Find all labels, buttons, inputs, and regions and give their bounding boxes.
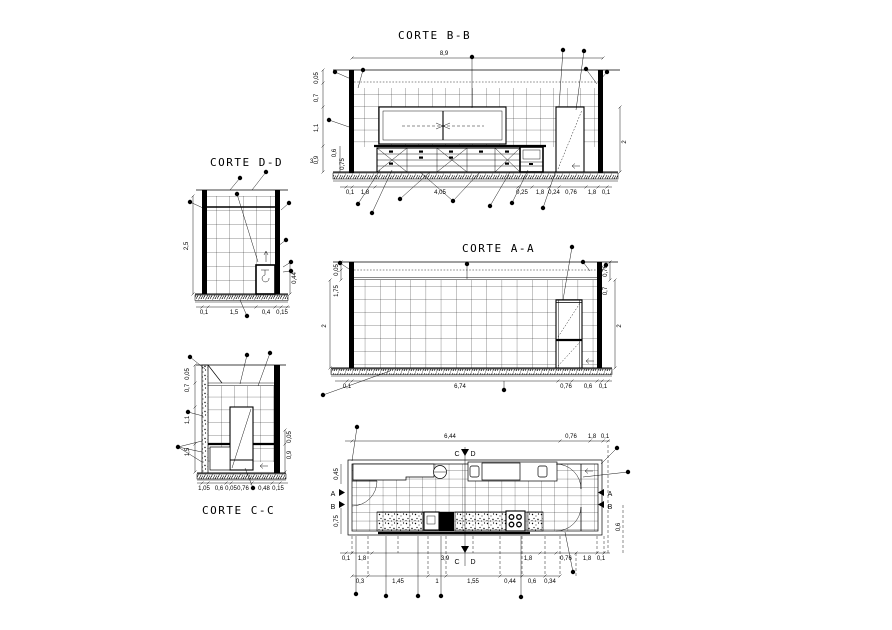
dim-label: 6,74: [454, 384, 466, 390]
section-corte-aa: CORTE A-A 0,1 6,74 0,76 0,6 0,1: [321, 242, 623, 397]
dim-label: 0,76: [565, 434, 577, 440]
plan-view: 6,44 0,76 1,8 0,1 C D C D: [331, 425, 631, 599]
marker-a-label: A: [331, 491, 336, 498]
wall-left: [202, 190, 207, 294]
dim-label: 0,1: [599, 384, 608, 390]
counter-granite: [377, 512, 423, 531]
dim-col-right: 0,76 0,7 2: [603, 261, 623, 370]
dim-col-right: 2: [619, 106, 629, 174]
dim-label: 0,76: [237, 486, 249, 492]
dim-row-2: 0,3 1,45 1 1,55 0,44 0,6 0,34: [351, 575, 562, 586]
floor-hatch: [197, 473, 286, 480]
wall-left: [349, 70, 354, 173]
tall-cabinet: [556, 107, 584, 172]
dim-label: 0,24: [548, 190, 560, 196]
dim-label: 0,6: [584, 384, 593, 390]
dim-label: 1,05: [198, 486, 210, 492]
section-corte-dd: CORTE D-D 3 0,1 1,5 0,4 0,15 2,: [184, 156, 314, 318]
dim-label: 0,48: [258, 486, 270, 492]
dim-label: 0,05: [334, 264, 340, 276]
dim-label: 1,1: [314, 123, 320, 132]
soffit-line: [354, 278, 597, 280]
dim-label: 0,44: [504, 579, 516, 585]
dim-label: 1,75: [334, 285, 340, 297]
tall-cabinet: [230, 407, 253, 470]
dim-label: 1,8: [588, 190, 597, 196]
dim-row-bottom: 0,1 6,74 0,76 0,6 0,1: [335, 380, 612, 391]
dim-label: 4,05: [434, 190, 446, 196]
dim-label: 0,6: [215, 486, 224, 492]
section-title: CORTE C-C: [202, 504, 275, 517]
section-corte-bb: CORTE B-B 8,9: [314, 29, 628, 215]
dim-label: 0,45: [334, 468, 340, 480]
wall-right: [597, 262, 602, 368]
dim-label: 1,8: [583, 556, 592, 562]
dim-label: 8,9: [440, 51, 449, 57]
dim-label: 0,1: [601, 434, 610, 440]
dim-label: 1: [435, 579, 439, 585]
oven-unit: [520, 147, 543, 172]
section-marker-right: A B: [598, 489, 613, 511]
dim-label: 0,75: [334, 515, 340, 527]
dim-label: 0,05: [185, 368, 191, 380]
dim-label: 0,7: [314, 93, 320, 102]
dim-label: 1,45: [392, 579, 404, 585]
dim-col-right: 0,05 0,9: [284, 429, 294, 474]
dim-label: 0,1: [343, 384, 352, 390]
dim-label: 0,4: [262, 310, 271, 316]
base-cabinet: [210, 447, 230, 470]
dim-row-top: 6,44 0,76 1,8 0,1: [345, 434, 610, 443]
marker-b-label: B: [331, 504, 336, 511]
dim-label: 2: [322, 324, 328, 328]
dim-label: 0,1: [597, 556, 606, 562]
ceiling-diagonal: [208, 365, 222, 383]
dim-label: 0,44: [292, 272, 298, 284]
floor-hatch: [195, 294, 288, 302]
section-title: CORTE D-D: [210, 156, 283, 169]
counter-granite: [527, 512, 543, 531]
dim-label: 2: [617, 324, 623, 328]
wall-right: [598, 70, 603, 173]
cooktop: [506, 511, 525, 531]
section-title: CORTE A-A: [462, 242, 535, 255]
floor-hatch: [331, 368, 612, 376]
dim-col-left: 0,05 0,7 1,1 1,5: [185, 364, 197, 474]
dim-col-left: 0,05 1,75 2: [322, 261, 343, 370]
dim-col-right: 0,44: [289, 261, 299, 296]
soffit-line: [208, 383, 274, 386]
dim-label: 0,1: [200, 310, 209, 316]
dim-label: 1,8: [524, 556, 533, 562]
return-arrow-icon: [260, 464, 268, 469]
wall-right: [274, 365, 280, 473]
wall-cabinet-group: [468, 462, 557, 481]
section-corte-cc: 1,05 0,6 0,05 0,76 0,48 0,15 0,05 0,7 1,…: [176, 351, 293, 517]
section-title: CORTE B-B: [398, 29, 471, 42]
marker-b-label: B: [608, 504, 613, 511]
dim-label: 0,15: [276, 310, 288, 316]
dim-label: 0,9: [314, 155, 320, 164]
dim-label: 1,1: [185, 415, 191, 424]
dim-label: 0,3: [356, 579, 365, 585]
dim-label: 0,05: [287, 431, 293, 443]
dim-label: 0,05: [314, 72, 320, 84]
dim-label: 3,9: [441, 556, 450, 562]
dim-label: 0,6: [528, 579, 537, 585]
dim-label: 2,5: [184, 241, 190, 250]
dim-label: 1,5: [230, 310, 239, 316]
dim-label: 0,6: [616, 522, 622, 531]
dim-label: 2: [622, 140, 628, 144]
dim-label: 1,55: [467, 579, 479, 585]
dim-label: 6,44: [444, 434, 456, 440]
dim-row-bottom: 1,05 0,6 0,05 0,76 0,48 0,15: [197, 482, 288, 493]
cut-label-c: C: [454, 559, 459, 566]
section-marker-left: A B: [331, 489, 345, 511]
wall-left: [202, 365, 208, 473]
sink: [424, 512, 454, 531]
cut-label-d: D: [470, 559, 475, 566]
dim-label: 0,1: [346, 190, 355, 196]
dim-col-left: 2,5: [184, 195, 195, 296]
dim-label: 1,8: [358, 556, 367, 562]
wall-left: [349, 262, 354, 368]
cad-sheet: CORTE B-B 8,9: [0, 0, 892, 630]
dim-label: 0,05: [225, 486, 237, 492]
dim-label: 0,7: [603, 286, 609, 295]
marker-a-label: A: [608, 491, 613, 498]
dim-label: 0,15: [272, 486, 284, 492]
dim-label: 1,8: [588, 434, 597, 440]
cad-drawing: CORTE B-B 8,9: [0, 0, 892, 630]
dim-label: 1,8: [536, 190, 545, 196]
counter-drawers: [374, 146, 546, 172]
window-unit: [379, 107, 506, 144]
dim-label: 0,1: [602, 190, 611, 196]
counter-band: [377, 511, 543, 533]
cut-label-c: C: [454, 451, 459, 458]
ceiling-lamp: [434, 466, 447, 479]
counter-granite: [455, 512, 506, 531]
dim-label: 0,1: [342, 556, 351, 562]
dim-label: 0,34: [544, 579, 556, 585]
cut-label-d: D: [470, 451, 475, 458]
dim-label: 0,9: [287, 450, 293, 459]
dim-label: 0,76: [560, 384, 572, 390]
dim-label: 0,6: [332, 148, 338, 157]
dim-label: 0,76: [565, 190, 577, 196]
dim-col-left: 0,45 0,75: [334, 464, 341, 534]
dim-label: 0,7: [185, 383, 191, 392]
dim-label: 0,75: [340, 158, 346, 170]
